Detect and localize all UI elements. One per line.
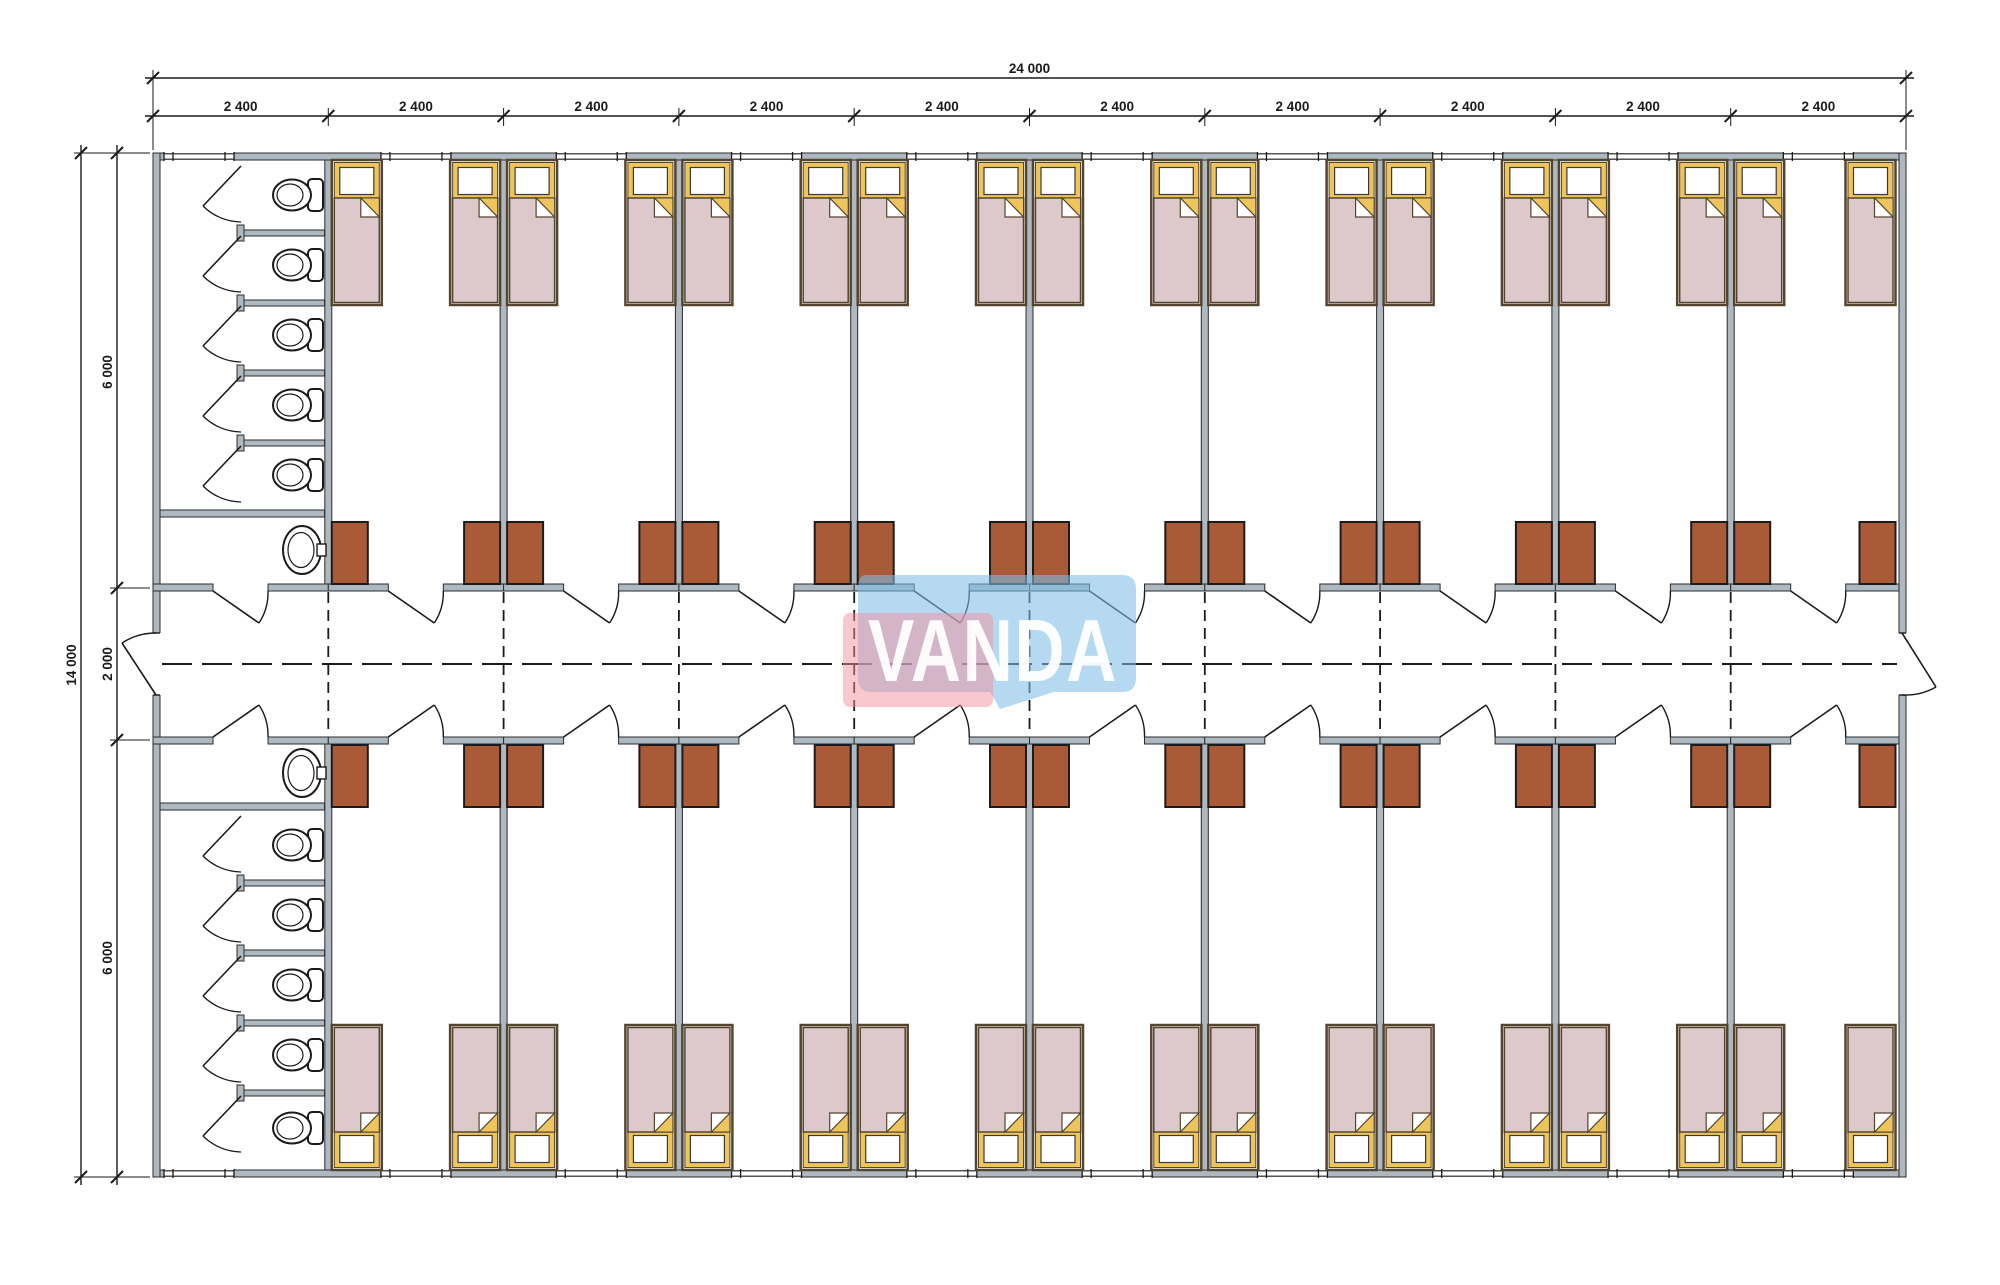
bed bbox=[1208, 160, 1258, 305]
segment-dimension-label: 2 400 bbox=[925, 99, 959, 114]
vanda-watermark: VANDA bbox=[843, 575, 1136, 709]
corridor-wall bbox=[153, 584, 213, 591]
bed bbox=[332, 160, 382, 305]
wardrobe bbox=[815, 745, 851, 807]
corridor-wall bbox=[268, 584, 328, 591]
bed bbox=[1677, 1025, 1727, 1170]
stall-door-arc bbox=[203, 996, 241, 1012]
wardrobe bbox=[1165, 522, 1201, 584]
wardrobe bbox=[639, 522, 675, 584]
toilet-bowl-inner bbox=[277, 464, 303, 486]
window bbox=[1433, 1169, 1503, 1179]
room-door-leaf bbox=[388, 705, 434, 737]
room-door-leaf bbox=[1440, 591, 1486, 623]
room-door-arc bbox=[960, 705, 969, 737]
stall-divider bbox=[242, 440, 325, 446]
wardrobe bbox=[1559, 522, 1595, 584]
room-door-arc bbox=[1837, 705, 1846, 737]
window bbox=[164, 1169, 234, 1179]
window bbox=[1082, 152, 1152, 162]
stall-door-leaf bbox=[203, 376, 241, 416]
wardrobe bbox=[990, 745, 1026, 807]
room-door-leaf bbox=[914, 705, 960, 737]
toilet-bowl-inner bbox=[277, 974, 303, 996]
corridor-wall bbox=[1030, 737, 1090, 744]
wardrobe bbox=[1384, 522, 1420, 584]
corridor-wall bbox=[1731, 737, 1791, 744]
wardrobe bbox=[1341, 745, 1377, 807]
window bbox=[1783, 1169, 1853, 1179]
window bbox=[381, 152, 451, 162]
stall-divider bbox=[242, 370, 325, 376]
window bbox=[732, 152, 802, 162]
segment-dimension-label: 2 400 bbox=[224, 99, 258, 114]
room-door-arc bbox=[1311, 591, 1320, 623]
corridor-wall bbox=[1205, 737, 1265, 744]
bed bbox=[1327, 1025, 1377, 1170]
corridor-wall bbox=[1320, 737, 1380, 744]
washbasin-bowl bbox=[288, 756, 314, 791]
wardrobe bbox=[332, 745, 368, 807]
wardrobe bbox=[1516, 522, 1552, 584]
room-door-leaf bbox=[1090, 705, 1136, 737]
corridor-wall bbox=[619, 584, 679, 591]
bed bbox=[1846, 1025, 1896, 1170]
corridor-wall bbox=[1670, 584, 1730, 591]
segment-dimension-label: 2 400 bbox=[1276, 99, 1310, 114]
corridor-wall bbox=[504, 737, 564, 744]
bed bbox=[976, 1025, 1026, 1170]
wardrobe bbox=[1691, 522, 1727, 584]
room-door-leaf bbox=[213, 591, 259, 623]
segment-dimension-label: 2 400 bbox=[1451, 99, 1485, 114]
stall-door-arc bbox=[203, 856, 241, 872]
toilet-bowl-inner bbox=[277, 254, 303, 276]
corridor-wall bbox=[1670, 737, 1730, 744]
stall-divider bbox=[242, 1090, 325, 1096]
toilet-bowl-inner bbox=[277, 184, 303, 206]
corridor-wall bbox=[1495, 737, 1555, 744]
room-door-leaf bbox=[1615, 591, 1661, 623]
wardrobe bbox=[332, 522, 368, 584]
window bbox=[1608, 1169, 1678, 1179]
room-door-arc bbox=[1136, 705, 1145, 737]
toilet-bowl-inner bbox=[277, 904, 303, 926]
corridor-wall bbox=[153, 737, 213, 744]
stall-divider bbox=[242, 1020, 325, 1026]
room-door-arc bbox=[785, 705, 794, 737]
corridor-wall bbox=[794, 737, 854, 744]
toilet-bowl-inner bbox=[277, 1044, 303, 1066]
corridor-wall bbox=[1846, 584, 1899, 591]
stall-door-leaf bbox=[203, 236, 241, 276]
wardrobe bbox=[990, 522, 1026, 584]
left-top-label: 6 000 bbox=[100, 355, 115, 389]
stall-door-arc bbox=[203, 486, 241, 502]
window bbox=[1257, 152, 1327, 162]
corridor-wall bbox=[1380, 737, 1440, 744]
wardrobe bbox=[1033, 522, 1069, 584]
wardrobe bbox=[858, 522, 894, 584]
room-door-arc bbox=[1486, 591, 1495, 623]
floor-plan: 24 0002 4002 4002 4002 4002 4002 4002 40… bbox=[0, 0, 2000, 1285]
room-door-arc bbox=[434, 705, 443, 737]
wardrobe bbox=[1860, 522, 1896, 584]
bed bbox=[1677, 160, 1727, 305]
left-middle-label: 2 000 bbox=[100, 647, 115, 681]
door-gap bbox=[1898, 633, 1908, 695]
corridor-wall bbox=[619, 737, 679, 744]
corridor-wall bbox=[328, 737, 388, 744]
window bbox=[556, 152, 626, 162]
corridor-wall bbox=[443, 737, 503, 744]
stall-divider bbox=[242, 300, 325, 306]
wardrobe bbox=[1691, 745, 1727, 807]
corridor-wall bbox=[1145, 584, 1205, 591]
corridor-wall bbox=[1846, 737, 1899, 744]
room-door-arc bbox=[259, 591, 268, 623]
toilet-bowl-inner bbox=[277, 1117, 303, 1139]
toilet bbox=[273, 829, 323, 861]
room-door-arc bbox=[1837, 591, 1846, 623]
room-door-leaf bbox=[1791, 705, 1837, 737]
corridor-wall bbox=[679, 584, 739, 591]
window bbox=[164, 152, 234, 162]
stall-door-arc bbox=[203, 206, 241, 222]
stall-door-arc bbox=[203, 1066, 241, 1082]
window bbox=[1433, 152, 1503, 162]
watermark-text: VANDA bbox=[868, 601, 1118, 700]
wardrobe bbox=[1384, 745, 1420, 807]
stall-door-leaf bbox=[203, 816, 241, 856]
corridor-wall bbox=[854, 737, 914, 744]
toilet bbox=[273, 899, 323, 931]
exterior-door-leaf bbox=[122, 643, 156, 695]
bed bbox=[1384, 1025, 1434, 1170]
room-door-arc bbox=[1661, 591, 1670, 623]
bed bbox=[332, 1025, 382, 1170]
segment-dimension-label: 2 400 bbox=[750, 99, 784, 114]
toilet bbox=[273, 459, 323, 491]
room-door-arc bbox=[785, 591, 794, 623]
bed bbox=[450, 160, 500, 305]
stall-divider bbox=[242, 230, 325, 236]
toilet bbox=[273, 1039, 323, 1071]
left-bottom-label: 6 000 bbox=[100, 941, 115, 975]
wardrobe bbox=[1033, 745, 1069, 807]
window bbox=[1608, 152, 1678, 162]
overall-height-label: 14 000 bbox=[64, 644, 79, 685]
toilet-bowl-inner bbox=[277, 324, 303, 346]
wardrobe bbox=[464, 745, 500, 807]
window bbox=[732, 1169, 802, 1179]
room-door-leaf bbox=[1440, 705, 1486, 737]
corridor-wall bbox=[443, 584, 503, 591]
wardrobe bbox=[1208, 745, 1244, 807]
room-door-leaf bbox=[1615, 705, 1661, 737]
stall-divider bbox=[242, 880, 325, 886]
bed bbox=[1502, 160, 1552, 305]
corridor-wall bbox=[328, 584, 388, 591]
stall-door-leaf bbox=[203, 1096, 241, 1136]
stall-door-leaf bbox=[203, 886, 241, 926]
corridor-wall bbox=[268, 737, 328, 744]
bed bbox=[1384, 160, 1434, 305]
room-door-leaf bbox=[1791, 591, 1837, 623]
corridor-wall bbox=[1495, 584, 1555, 591]
toilet-bowl-inner bbox=[277, 394, 303, 416]
corridor-wall bbox=[1205, 584, 1265, 591]
bed bbox=[625, 160, 675, 305]
sanitary-block bbox=[160, 166, 326, 1152]
wardrobe bbox=[1516, 745, 1552, 807]
bed bbox=[976, 160, 1026, 305]
room-door-arc bbox=[1661, 705, 1670, 737]
room-door-leaf bbox=[213, 705, 259, 737]
stall-door-arc bbox=[203, 926, 241, 942]
corridor-wall bbox=[504, 584, 564, 591]
bed bbox=[682, 1025, 732, 1170]
bed bbox=[1151, 160, 1201, 305]
segment-dimension-label: 2 400 bbox=[574, 99, 608, 114]
corridor-wall bbox=[1555, 584, 1615, 591]
corridor-wall bbox=[1145, 737, 1205, 744]
washbasin-tap bbox=[317, 767, 326, 779]
bed bbox=[625, 1025, 675, 1170]
wardrobe bbox=[858, 745, 894, 807]
wardrobe bbox=[507, 522, 543, 584]
stall-door-arc bbox=[203, 346, 241, 362]
bed bbox=[858, 160, 908, 305]
stall-door-leaf bbox=[203, 306, 241, 346]
bed bbox=[801, 1025, 851, 1170]
bed bbox=[1734, 1025, 1784, 1170]
door-gap bbox=[152, 633, 162, 695]
stall-door-arc bbox=[203, 1136, 241, 1152]
wardrobe bbox=[1734, 522, 1770, 584]
bed bbox=[1327, 160, 1377, 305]
bed bbox=[1151, 1025, 1201, 1170]
washbasin bbox=[283, 526, 326, 574]
toilet bbox=[273, 179, 323, 211]
window bbox=[556, 1169, 626, 1179]
corridor-wall bbox=[1380, 584, 1440, 591]
room-door-arc bbox=[610, 591, 619, 623]
bed bbox=[682, 160, 732, 305]
stall-door-leaf bbox=[203, 1026, 241, 1066]
bed bbox=[1559, 1025, 1609, 1170]
bed bbox=[1208, 1025, 1258, 1170]
segment-dimension-label: 2 400 bbox=[399, 99, 433, 114]
floor-plan-svg: 24 0002 4002 4002 4002 4002 4002 4002 40… bbox=[0, 0, 2000, 1285]
stall-door-arc bbox=[203, 416, 241, 432]
toilet bbox=[273, 969, 323, 1001]
wardrobe bbox=[682, 745, 718, 807]
wardrobe bbox=[507, 745, 543, 807]
segment-dimension-label: 2 400 bbox=[1801, 99, 1835, 114]
corridor-wall bbox=[1320, 584, 1380, 591]
bed bbox=[450, 1025, 500, 1170]
segment-dimension-label: 2 400 bbox=[1100, 99, 1134, 114]
corridor-wall bbox=[794, 584, 854, 591]
room-door-leaf bbox=[564, 591, 610, 623]
wardrobe bbox=[464, 522, 500, 584]
room-door-leaf bbox=[388, 591, 434, 623]
window bbox=[907, 152, 977, 162]
room-door-arc bbox=[1136, 591, 1145, 623]
room-door-arc bbox=[1486, 705, 1495, 737]
corridor-wall bbox=[969, 737, 1029, 744]
corridor-wall bbox=[1555, 737, 1615, 744]
stall-door-arc bbox=[203, 276, 241, 292]
bed bbox=[1734, 160, 1784, 305]
bed bbox=[858, 1025, 908, 1170]
toilet bbox=[273, 389, 323, 421]
room-door-leaf bbox=[739, 705, 785, 737]
room-door-leaf bbox=[1265, 705, 1311, 737]
window bbox=[1257, 1169, 1327, 1179]
wardrobe bbox=[1341, 522, 1377, 584]
segment-dimension-label: 2 400 bbox=[1626, 99, 1660, 114]
stall-block-wall bbox=[160, 803, 325, 810]
toilet bbox=[273, 249, 323, 281]
corridor-wall bbox=[679, 737, 739, 744]
overall-width-label: 24 000 bbox=[1009, 61, 1050, 76]
bed bbox=[801, 160, 851, 305]
stall-block-wall bbox=[160, 510, 325, 517]
washbasin bbox=[283, 749, 326, 797]
wardrobe bbox=[639, 745, 675, 807]
bed bbox=[507, 160, 557, 305]
bed bbox=[1846, 160, 1896, 305]
room-door-leaf bbox=[739, 591, 785, 623]
window bbox=[381, 1169, 451, 1179]
room-door-arc bbox=[610, 705, 619, 737]
bed bbox=[507, 1025, 557, 1170]
stall-door-leaf bbox=[203, 956, 241, 996]
room-door-arc bbox=[259, 705, 268, 737]
corridor-wall bbox=[1731, 584, 1791, 591]
washbasin-bowl bbox=[288, 533, 314, 568]
wardrobe bbox=[1559, 745, 1595, 807]
wardrobe bbox=[815, 522, 851, 584]
wardrobe bbox=[1208, 522, 1244, 584]
room-door-arc bbox=[434, 591, 443, 623]
stall-door-leaf bbox=[203, 446, 241, 486]
window bbox=[907, 1169, 977, 1179]
window bbox=[1783, 152, 1853, 162]
stall-door-leaf bbox=[203, 166, 241, 206]
wardrobe bbox=[682, 522, 718, 584]
wardrobe bbox=[1734, 745, 1770, 807]
room-door-leaf bbox=[1265, 591, 1311, 623]
washbasin-tap bbox=[317, 544, 326, 556]
wardrobe bbox=[1165, 745, 1201, 807]
window bbox=[1082, 1169, 1152, 1179]
bed bbox=[1033, 160, 1083, 305]
bed bbox=[1502, 1025, 1552, 1170]
wardrobe bbox=[1860, 745, 1896, 807]
exterior-door-arc bbox=[122, 633, 156, 643]
toilet-bowl-inner bbox=[277, 834, 303, 856]
stall-divider bbox=[242, 950, 325, 956]
room-door-leaf bbox=[564, 705, 610, 737]
bed bbox=[1033, 1025, 1083, 1170]
room-door-arc bbox=[1311, 705, 1320, 737]
toilet bbox=[273, 1112, 323, 1144]
bed bbox=[1559, 160, 1609, 305]
toilet bbox=[273, 319, 323, 351]
